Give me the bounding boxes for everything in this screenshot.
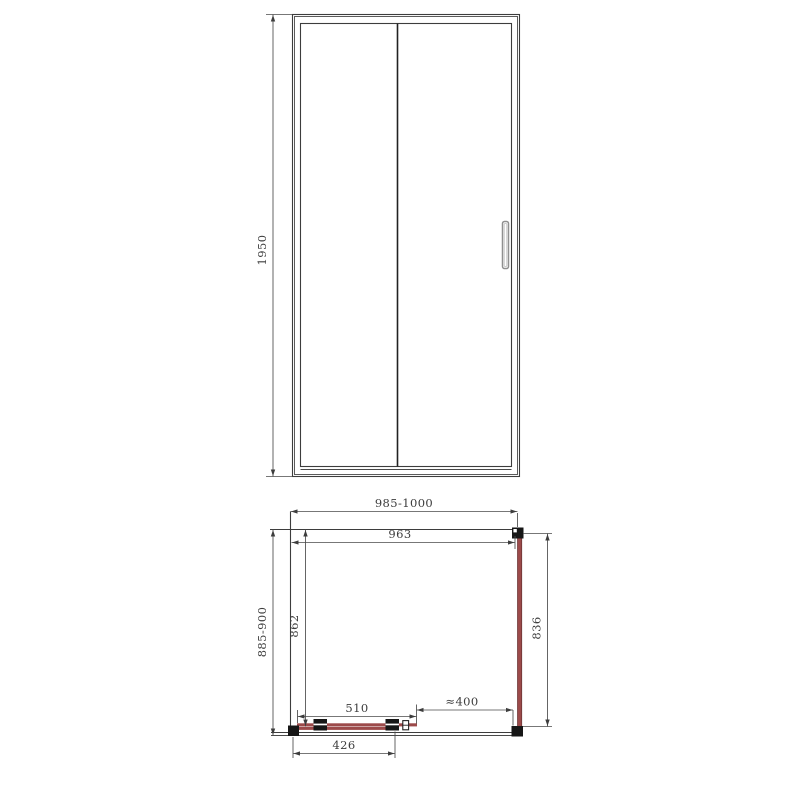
dim-arrow <box>271 729 275 736</box>
door-frame-outer <box>293 15 520 477</box>
front-elevation-view: 1950 <box>255 15 520 477</box>
door-frame-inner <box>301 24 512 467</box>
dim-text-inner-depth: 862 <box>287 614 301 637</box>
dim-arrow <box>271 15 275 22</box>
dim-arrow <box>545 720 549 727</box>
dim-arrow <box>508 540 515 544</box>
dim-plan-opening: ≈400 <box>417 695 514 726</box>
dim-arrow <box>298 714 305 718</box>
plan-corner-block-bottom-right <box>512 726 524 737</box>
door-frame-outer-inner-line <box>295 17 518 475</box>
drawing-svg: 1950 <box>0 0 800 800</box>
dim-plan-side-panel: 836 <box>523 534 552 727</box>
dim-plan-overall-width: 985-1000 <box>291 496 518 527</box>
dim-text-panel-width: 426 <box>332 738 355 752</box>
dim-arrow <box>291 509 298 513</box>
dim-text-overall-width: 985-1000 <box>375 496 433 510</box>
dim-arrow <box>506 708 513 712</box>
dim-text-overall-depth: 885-900 <box>255 607 269 658</box>
dim-text-front-height: 1950 <box>255 235 269 266</box>
dim-arrow <box>388 751 395 755</box>
plan-fixed-panel-glass <box>292 727 396 730</box>
dim-front-height: 1950 <box>255 15 292 477</box>
dim-arrow <box>511 509 518 513</box>
dim-text-slide: 510 <box>345 701 368 715</box>
dim-arrow <box>271 530 275 537</box>
dim-arrow <box>545 534 549 541</box>
plan-corner-block-notch <box>513 529 516 532</box>
dim-text-glass-width: 963 <box>388 527 411 541</box>
plan-corner-block-bottom-left <box>288 726 299 737</box>
door-handle <box>503 222 509 269</box>
plan-side-glass-panel <box>518 539 522 727</box>
dim-plan-overall-depth: 885-900 <box>255 530 275 736</box>
plan-roller-slit <box>386 724 400 726</box>
dim-plan-glass-width: 963 <box>292 527 516 549</box>
dim-arrow <box>410 714 417 718</box>
dim-arrow <box>271 470 275 477</box>
technical-drawing-page: 1950 <box>0 0 800 800</box>
plan-roller-slit <box>314 724 328 726</box>
dim-text-opening: ≈400 <box>445 695 478 709</box>
dim-arrow <box>294 751 301 755</box>
dim-arrow <box>303 530 307 537</box>
plan-view: 985-1000 963 885-900 862 <box>255 496 552 758</box>
dim-text-side-panel: 836 <box>530 616 544 639</box>
dim-arrow <box>417 708 424 712</box>
dim-arrow <box>292 540 299 544</box>
